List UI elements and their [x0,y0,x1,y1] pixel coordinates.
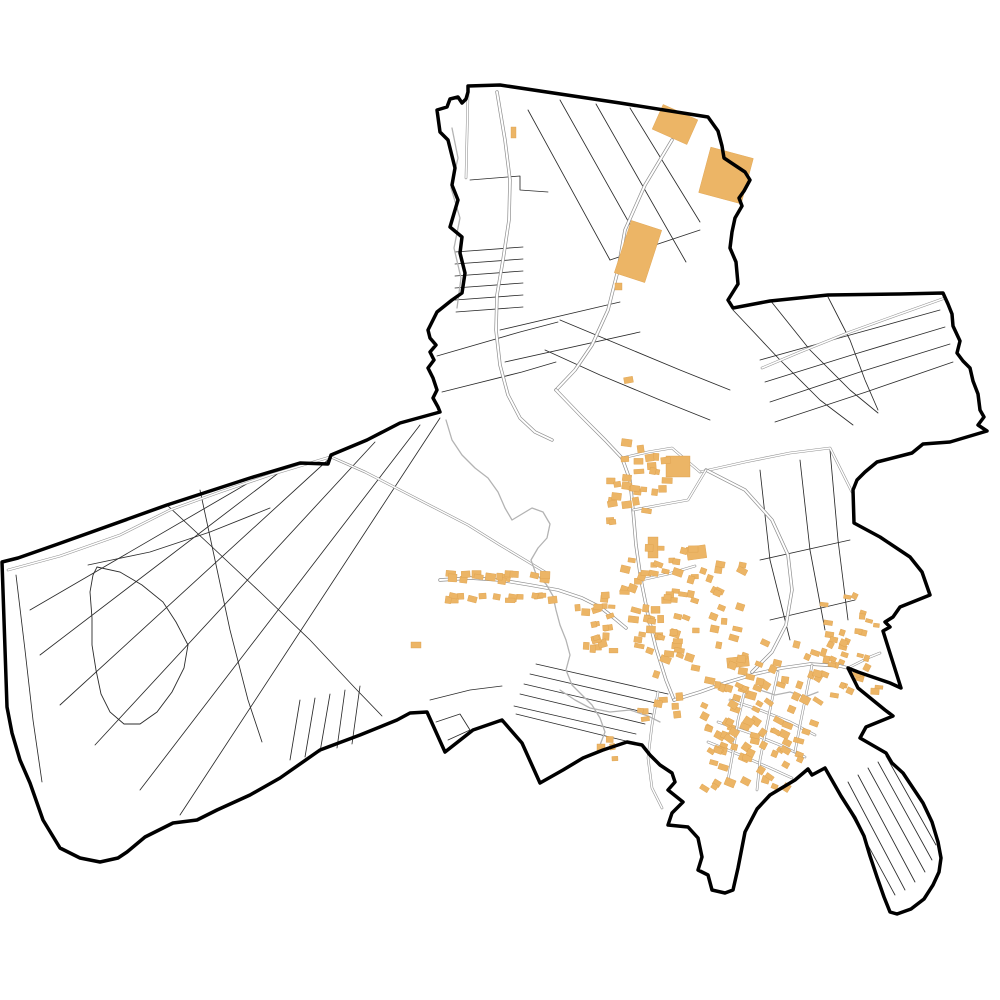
forest-area-layer [90,567,188,724]
map-canvas [0,0,1000,1000]
municipality-map [0,0,1000,1000]
municipal-boundary-layer [2,85,987,914]
